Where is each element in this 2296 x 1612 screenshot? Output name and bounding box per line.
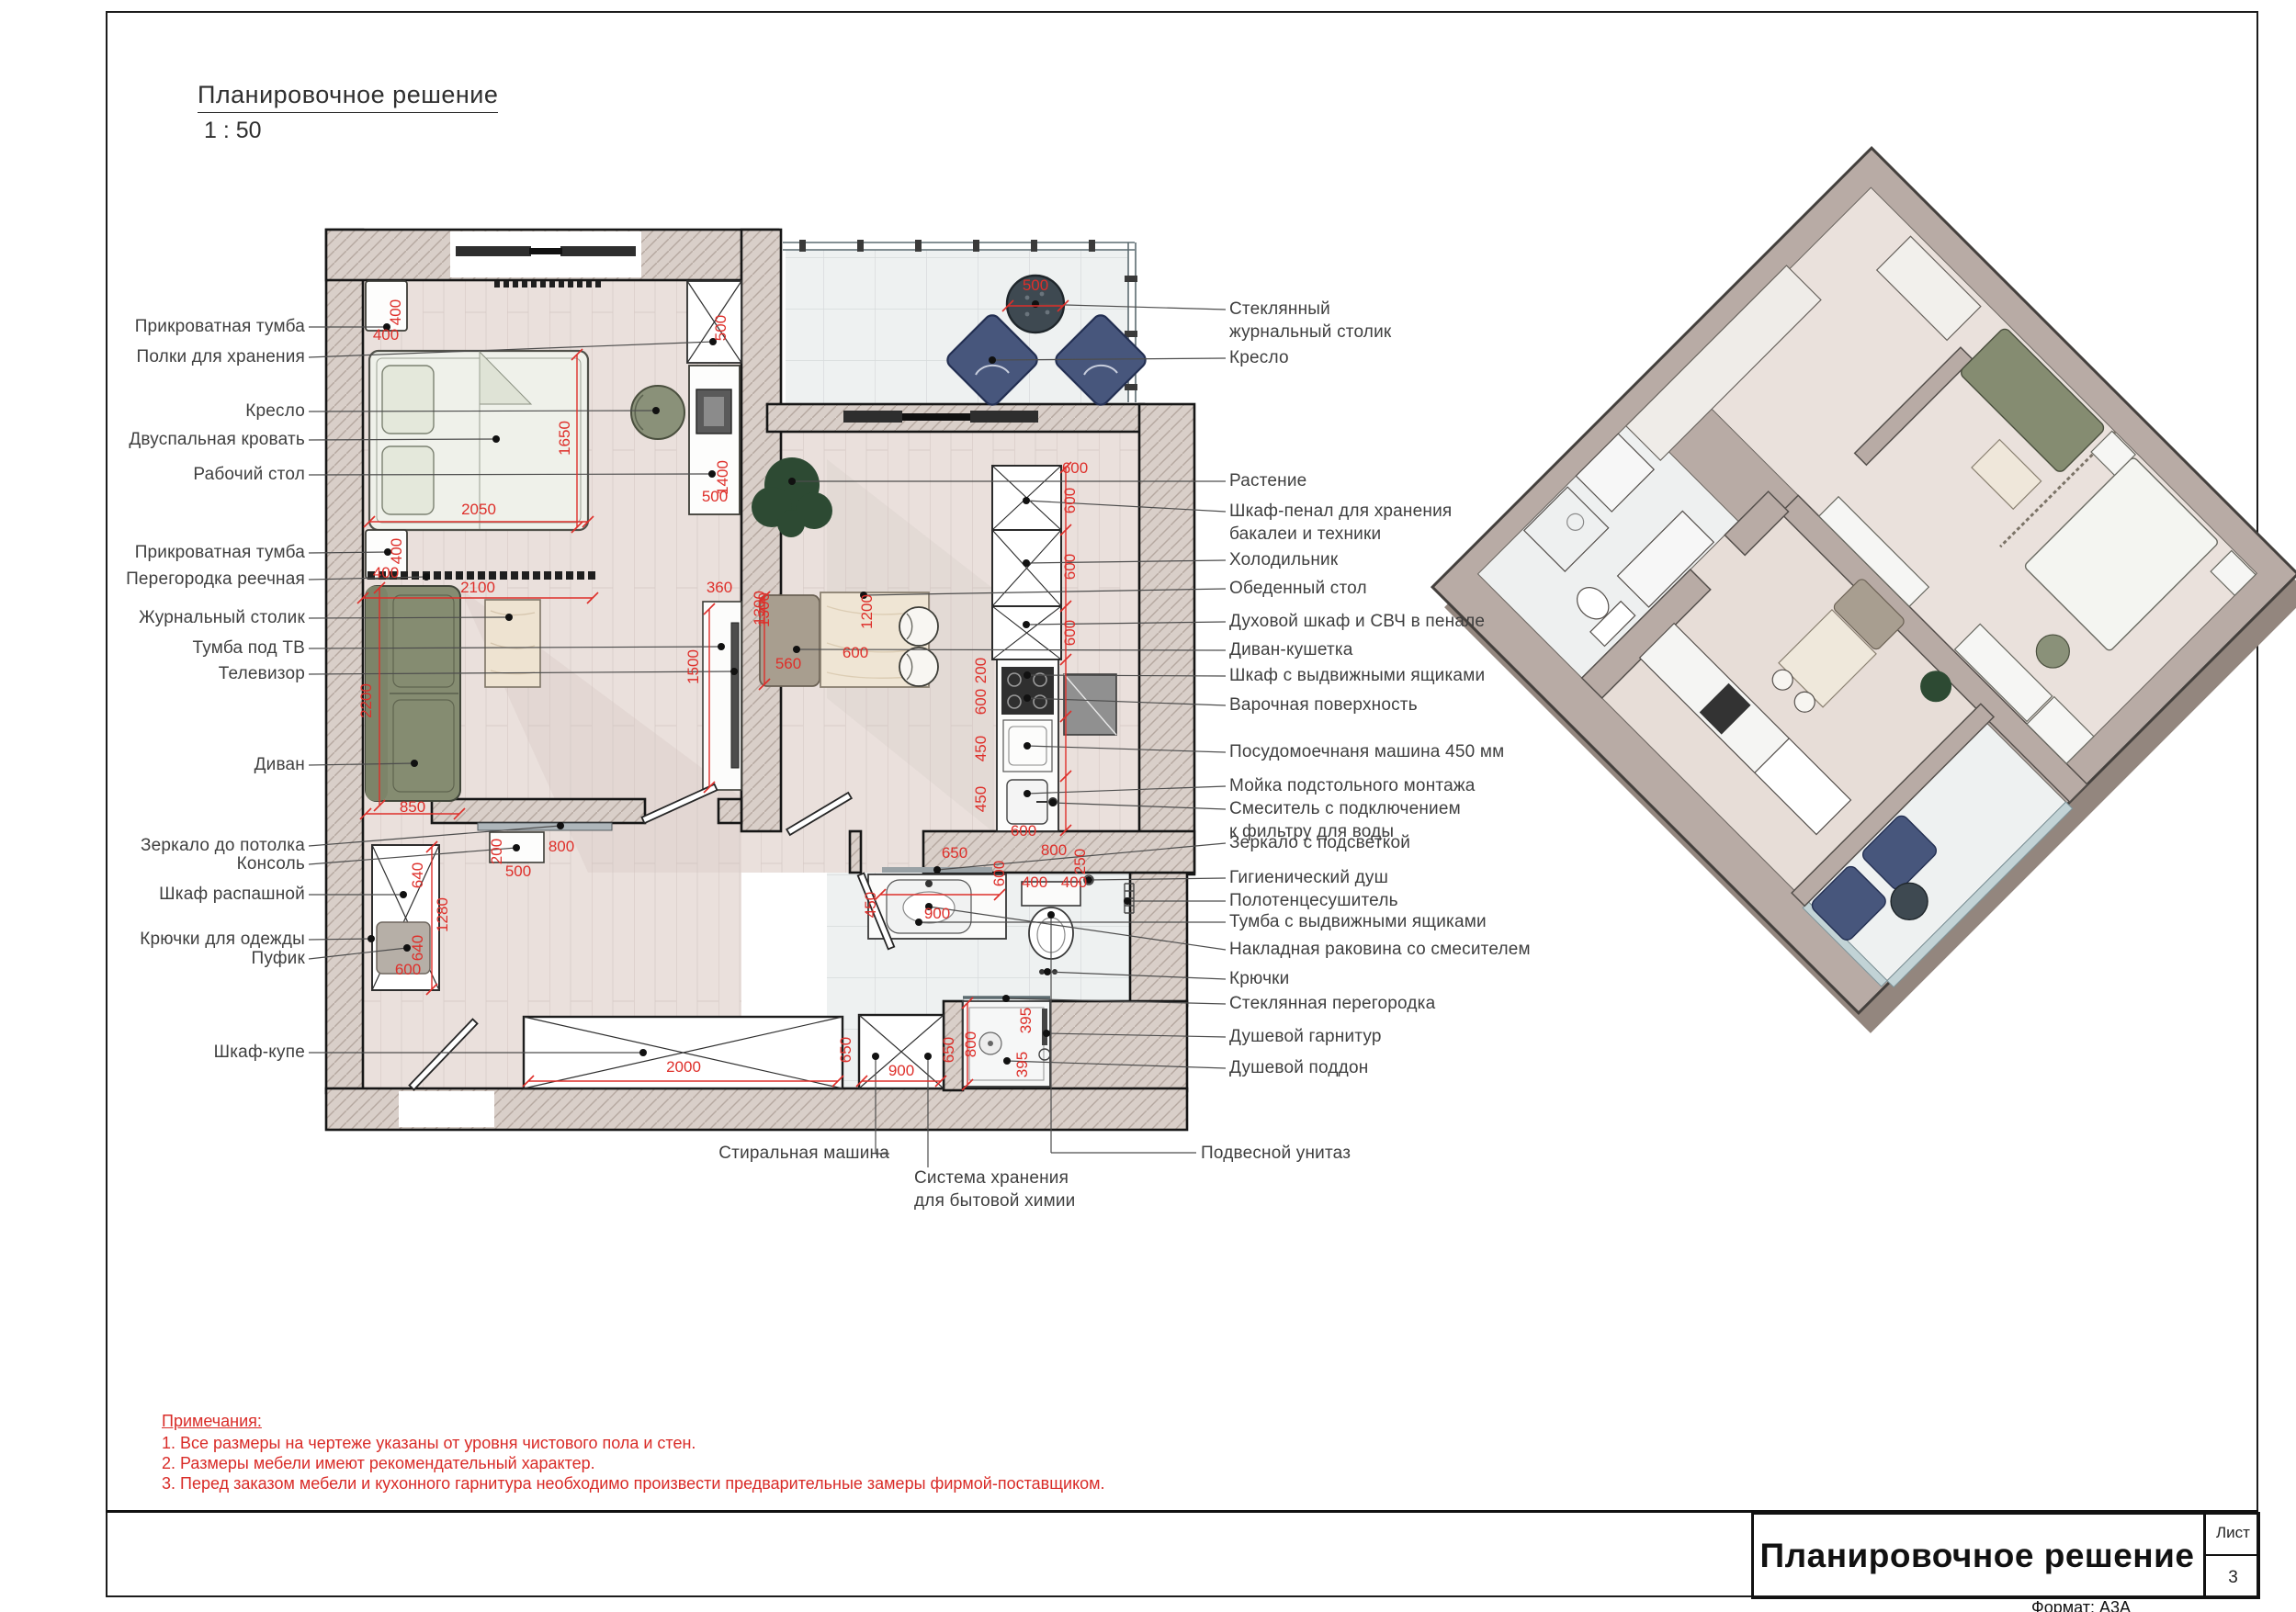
svg-text:2050: 2050 <box>461 501 496 518</box>
shower-set <box>1042 1009 1047 1045</box>
svg-text:800: 800 <box>549 838 574 855</box>
svg-text:850: 850 <box>400 798 425 816</box>
svg-text:450: 450 <box>972 736 990 761</box>
svg-text:600: 600 <box>395 961 421 978</box>
note-item: 2. Размеры мебели имеют рекомендательный… <box>162 1454 1105 1472</box>
svg-text:600: 600 <box>1061 620 1079 646</box>
note-item: 3. Перед заказом мебели и кухонного гарн… <box>162 1474 1105 1493</box>
svg-text:1200: 1200 <box>858 594 876 629</box>
svg-text:450: 450 <box>972 786 990 812</box>
svg-text:600: 600 <box>1011 822 1036 840</box>
svg-text:400: 400 <box>373 326 399 344</box>
svg-text:650: 650 <box>940 1037 957 1063</box>
sheet-number-cell: 3 <box>2203 1556 2260 1599</box>
svg-text:2100: 2100 <box>460 579 495 596</box>
format-label: Формат: А3А <box>1929 1598 2233 1612</box>
svg-text:500: 500 <box>505 862 531 880</box>
svg-text:640: 640 <box>409 862 426 888</box>
note-item: 1. Все размеры на чертеже указаны от уро… <box>162 1434 1105 1452</box>
svg-text:640: 640 <box>409 935 426 961</box>
bath-vanity <box>868 867 1006 939</box>
svg-text:400: 400 <box>373 564 399 581</box>
svg-text:500: 500 <box>1023 276 1048 294</box>
floor-plan: 4004005001650205014005004004002100360130… <box>0 0 2296 1612</box>
svg-text:650: 650 <box>837 1037 854 1063</box>
svg-text:600: 600 <box>1061 554 1079 580</box>
notes-block: Примечания: 1. Все размеры на чертеже ук… <box>162 1412 1105 1493</box>
svg-text:600: 600 <box>1062 459 1088 477</box>
utility-box <box>1064 674 1116 735</box>
svg-text:450: 450 <box>862 892 879 918</box>
svg-text:900: 900 <box>888 1062 914 1079</box>
svg-text:250: 250 <box>1071 849 1089 874</box>
svg-text:400: 400 <box>1061 874 1087 891</box>
svg-text:200: 200 <box>488 839 505 864</box>
svg-text:1280: 1280 <box>434 897 451 932</box>
svg-text:600: 600 <box>1061 488 1079 513</box>
svg-text:1300: 1300 <box>755 592 773 627</box>
svg-text:400: 400 <box>388 538 405 564</box>
svg-text:400: 400 <box>387 299 404 325</box>
svg-text:600: 600 <box>843 644 868 661</box>
notes-heading: Примечания: <box>162 1412 1105 1430</box>
coffee-table <box>485 600 540 687</box>
svg-text:2000: 2000 <box>666 1058 701 1076</box>
svg-text:1650: 1650 <box>556 421 573 456</box>
sheet-label-cell: Лист <box>2203 1512 2260 1556</box>
svg-text:200: 200 <box>972 658 990 683</box>
svg-text:2200: 2200 <box>357 683 375 718</box>
svg-text:500: 500 <box>712 315 730 341</box>
svg-text:900: 900 <box>924 905 950 922</box>
svg-text:360: 360 <box>707 579 732 596</box>
svg-text:800: 800 <box>962 1031 979 1057</box>
svg-text:560: 560 <box>775 655 801 672</box>
svg-text:1500: 1500 <box>684 649 702 684</box>
svg-text:500: 500 <box>702 488 728 505</box>
svg-text:600: 600 <box>972 689 990 715</box>
svg-text:650: 650 <box>942 844 967 862</box>
svg-text:395: 395 <box>1013 1052 1031 1077</box>
svg-text:395: 395 <box>1017 1008 1035 1033</box>
svg-text:600: 600 <box>990 861 1008 886</box>
axonometric-view <box>1432 148 2296 1033</box>
drawing-sheet: Планировочное решение 1 : 50 <box>0 0 2296 1612</box>
stamp-title: Планировочное решение <box>1751 1512 2203 1599</box>
entry-opening <box>399 1091 494 1127</box>
svg-text:800: 800 <box>1041 841 1067 859</box>
svg-text:400: 400 <box>1022 874 1047 891</box>
